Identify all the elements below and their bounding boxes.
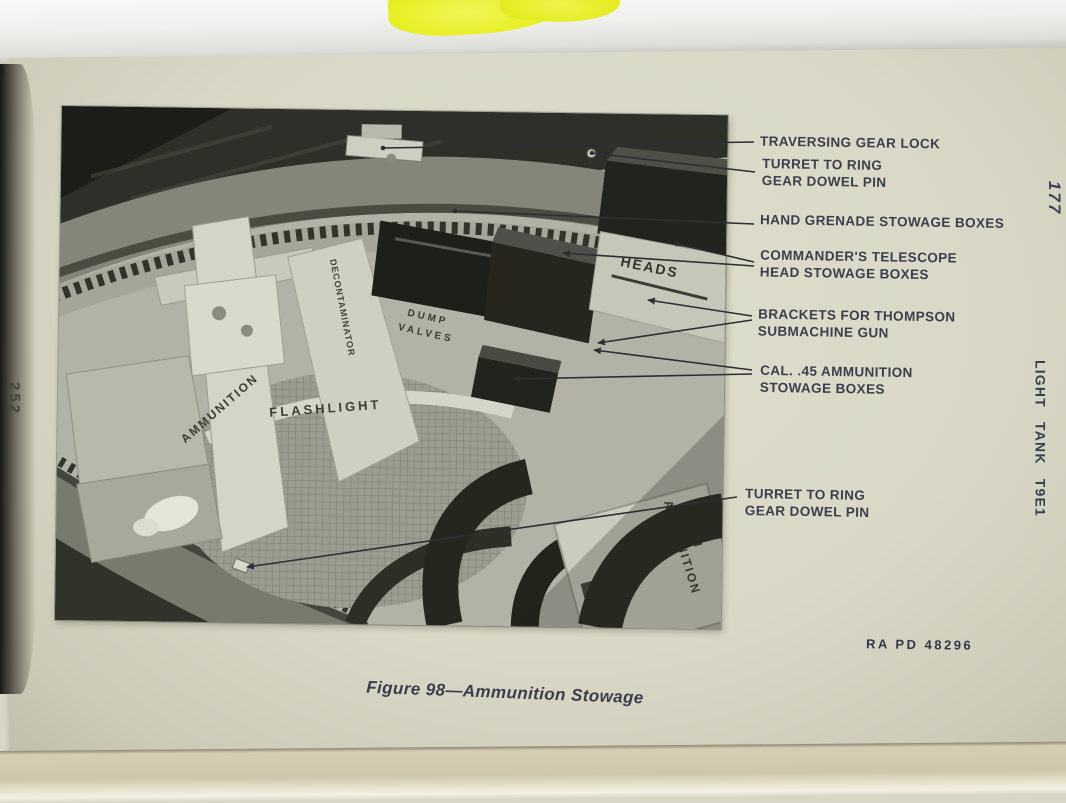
callout-text: TURRET TO RING xyxy=(762,155,887,174)
page-number-left: 252 xyxy=(5,368,23,430)
callout-traversing-gear-lock: TRAVERSING GEAR LOCK xyxy=(760,133,941,153)
callout-text: GEAR DOWEL PIN xyxy=(762,172,887,191)
photo-credit: RA PD 48296 xyxy=(866,636,973,652)
callout-text: GEAR DOWEL PIN xyxy=(745,502,870,521)
figure-photo: 37 MM AMMUNITION AMMUNITION DECONTAMINAT… xyxy=(55,106,728,629)
callout-text: STOWAGE BOXES xyxy=(760,379,913,398)
callout-turret-ring-dowel-pin-bottom: TURRET TO RING GEAR DOWEL PIN xyxy=(745,485,870,521)
callout-text: HEAD STOWAGE BOXES xyxy=(760,263,957,283)
dowel-pin-top xyxy=(587,149,596,158)
margin-title: LIGHT TANK T9E1 xyxy=(1032,351,1049,527)
callout-turret-ring-dowel-pin-top: TURRET TO RING GEAR DOWEL PIN xyxy=(762,155,887,191)
callout-cal45-boxes: CAL. .45 AMMUNITION STOWAGE BOXES xyxy=(760,362,913,398)
callout-commanders-telescope: COMMANDER'S TELESCOPE HEAD STOWAGE BOXES xyxy=(760,246,957,283)
callout-text: SUBMACHINE GUN xyxy=(758,322,956,342)
callout-text: TURRET TO RING xyxy=(745,485,870,504)
page-edges-below xyxy=(0,742,1066,803)
callout-text: TRAVERSING GEAR LOCK xyxy=(760,133,941,153)
page-number-edge: 177 xyxy=(1044,148,1064,248)
callout-thompson-brackets: BRACKETS FOR THOMPSON SUBMACHINE GUN xyxy=(758,305,956,342)
